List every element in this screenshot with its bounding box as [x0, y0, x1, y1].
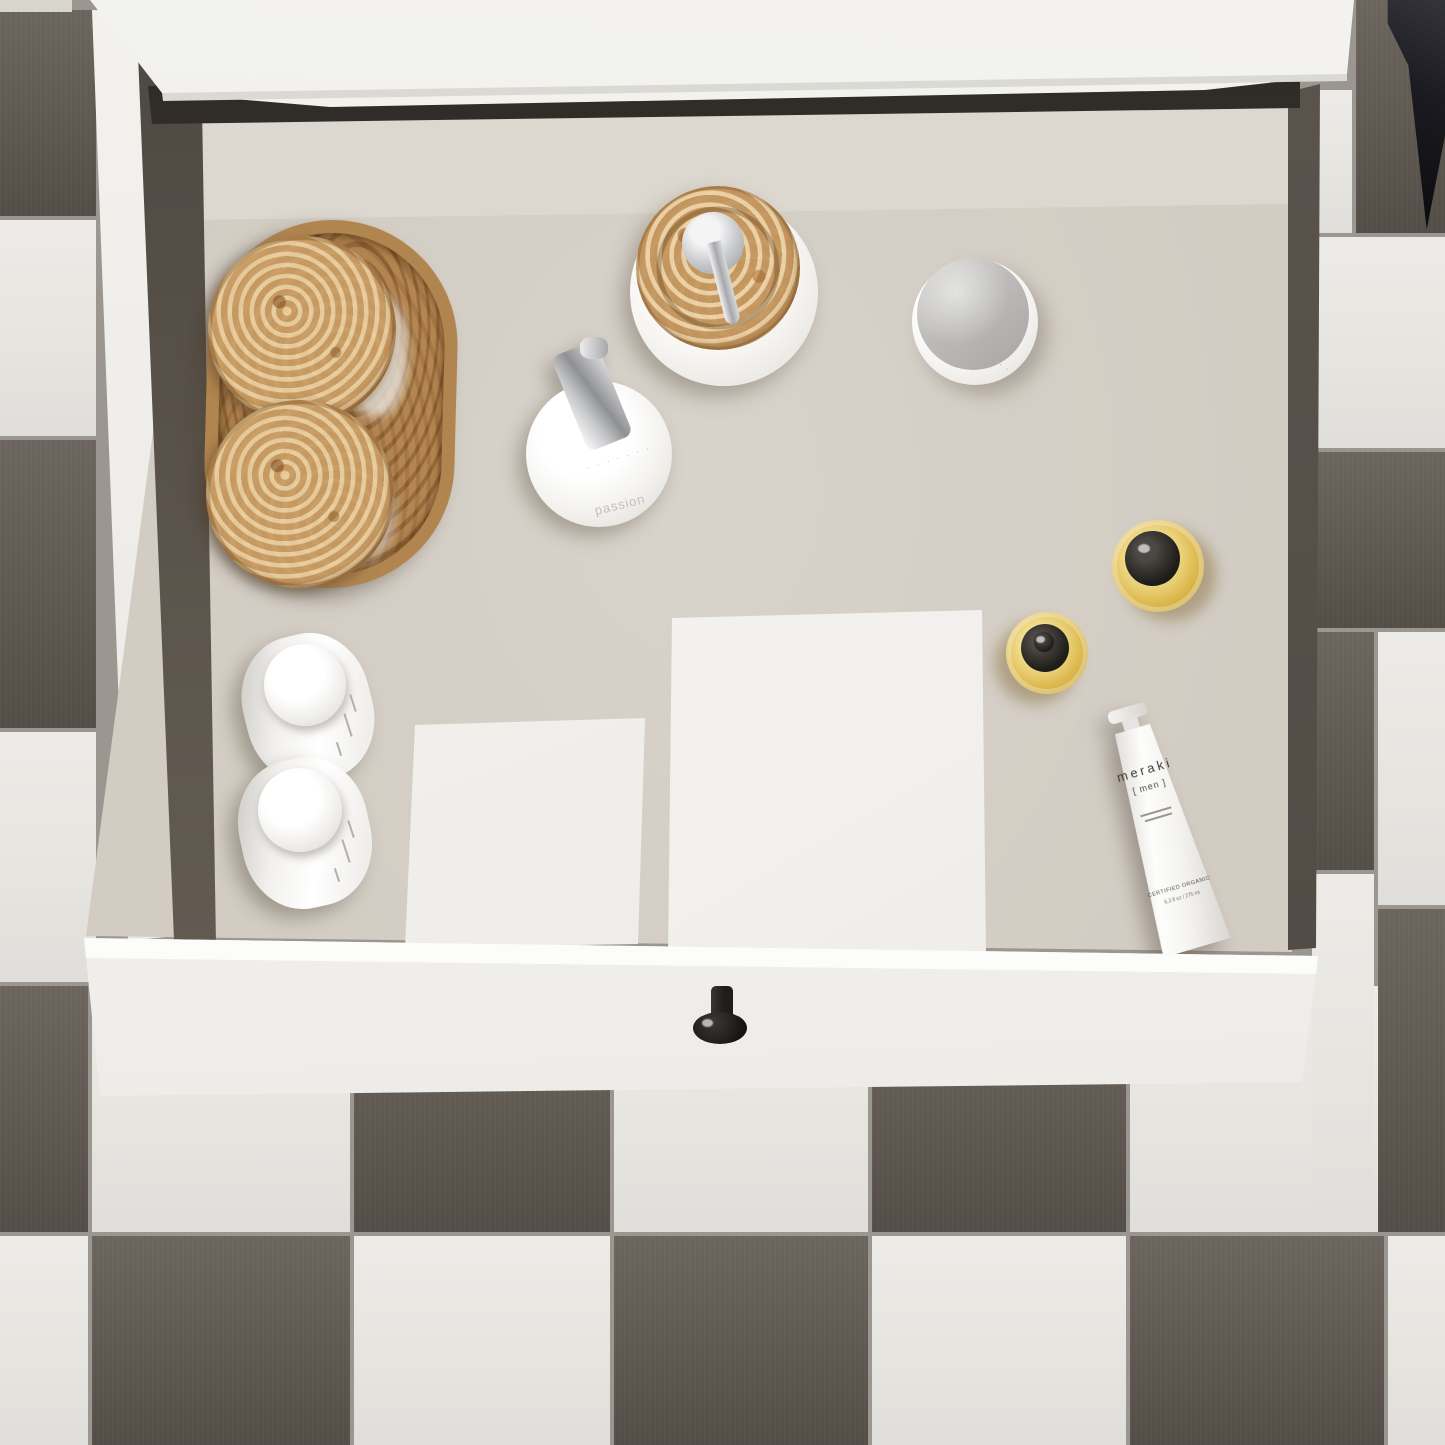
- floor-tile-light: [1388, 1236, 1445, 1445]
- floor-tile-dark: [1130, 1236, 1384, 1445]
- floor-tile-light: [0, 732, 96, 982]
- floor-tile-dark: [1312, 452, 1445, 628]
- cap-specular-highlight: [1036, 636, 1045, 643]
- floor-tile-light: [354, 1236, 610, 1445]
- floor-tile-dark: [0, 10, 96, 216]
- floor-tile-light: [872, 1236, 1126, 1445]
- amber-oil-bottle-2: [1006, 612, 1092, 702]
- floor-tile-light: [0, 1236, 88, 1445]
- pump-bottle-chrome-cap: [580, 337, 608, 359]
- amber-oil-bottle-1: [1112, 520, 1208, 620]
- floor-tile-corner-sliver: [0, 0, 72, 12]
- floor-tile-dark: [0, 440, 96, 728]
- cream-jar: · · · ·: [905, 252, 1045, 392]
- floor-tile-light: [0, 220, 96, 436]
- floor-tile-light: [1312, 237, 1445, 448]
- floor-tile-light: [1378, 632, 1445, 905]
- floor-tile-dark: [1378, 909, 1445, 1232]
- scene-open-drawer-top-view: · · · · · · · passion · · · · meraki [ m…: [0, 0, 1445, 1445]
- bottle-dome-cap: [264, 644, 346, 726]
- burl-container-lid-1: [208, 236, 396, 424]
- floor-tile-dark: [614, 1236, 868, 1445]
- cap-specular-highlight: [1138, 544, 1150, 553]
- burl-container-lid-2: [206, 400, 394, 588]
- floor-tile-light: [1312, 874, 1374, 1232]
- cream-jar-lid: [917, 258, 1029, 370]
- dome-cap-bottle-2: [236, 752, 378, 914]
- knob-specular-highlight: [702, 1019, 713, 1027]
- amber-bottle-black-cap: [1125, 531, 1180, 586]
- floor-tile-dark: [92, 1236, 350, 1445]
- bottle-dome-cap: [258, 768, 342, 852]
- floor-tile-dark: [1312, 632, 1374, 870]
- floor-tile-dark: [0, 986, 88, 1232]
- wood-lid-dispenser: [628, 184, 828, 394]
- drawer-knob: [693, 1012, 747, 1044]
